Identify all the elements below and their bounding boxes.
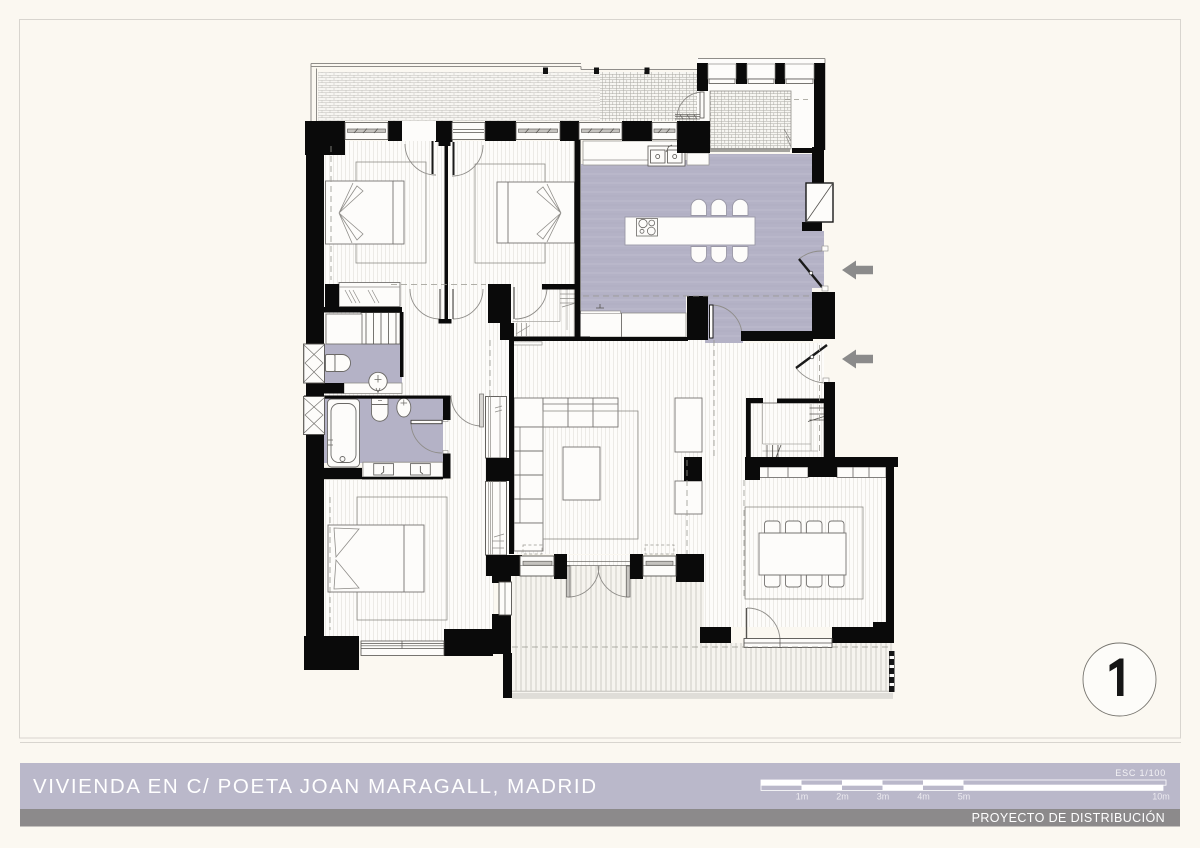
svg-text:10m: 10m [1152,792,1170,802]
svg-text:PROYECTO DE DISTRIBUCIÓN: PROYECTO DE DISTRIBUCIÓN [972,810,1165,825]
svg-text:4m: 4m [917,792,930,802]
svg-text:5m: 5m [958,792,971,802]
svg-text:2m: 2m [836,792,849,802]
svg-text:1m: 1m [796,792,809,802]
svg-text:3m: 3m [877,792,890,802]
svg-text:VIVIENDA EN C/ POETA JOAN MARA: VIVIENDA EN C/ POETA JOAN MARAGALL, MADR… [33,775,598,798]
svg-text:ESC 1/100: ESC 1/100 [1115,768,1166,778]
